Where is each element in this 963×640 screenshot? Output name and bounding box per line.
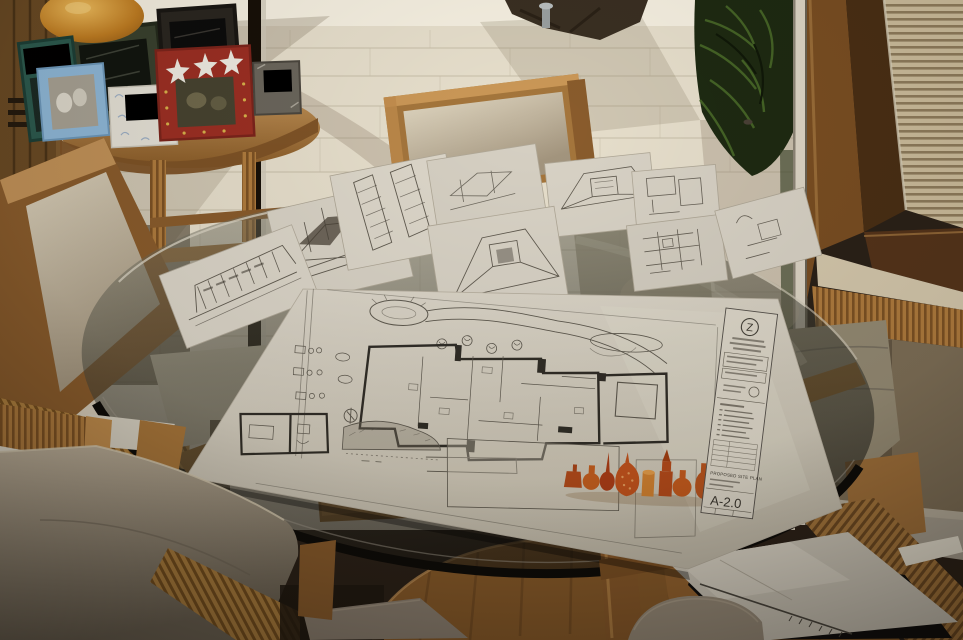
scene-canvas: Z PROPOSED SITE PLAN A-2.0 <box>0 0 963 640</box>
vignette-overlay <box>0 0 963 640</box>
photo-scene: Z PROPOSED SITE PLAN A-2.0 <box>0 0 963 640</box>
